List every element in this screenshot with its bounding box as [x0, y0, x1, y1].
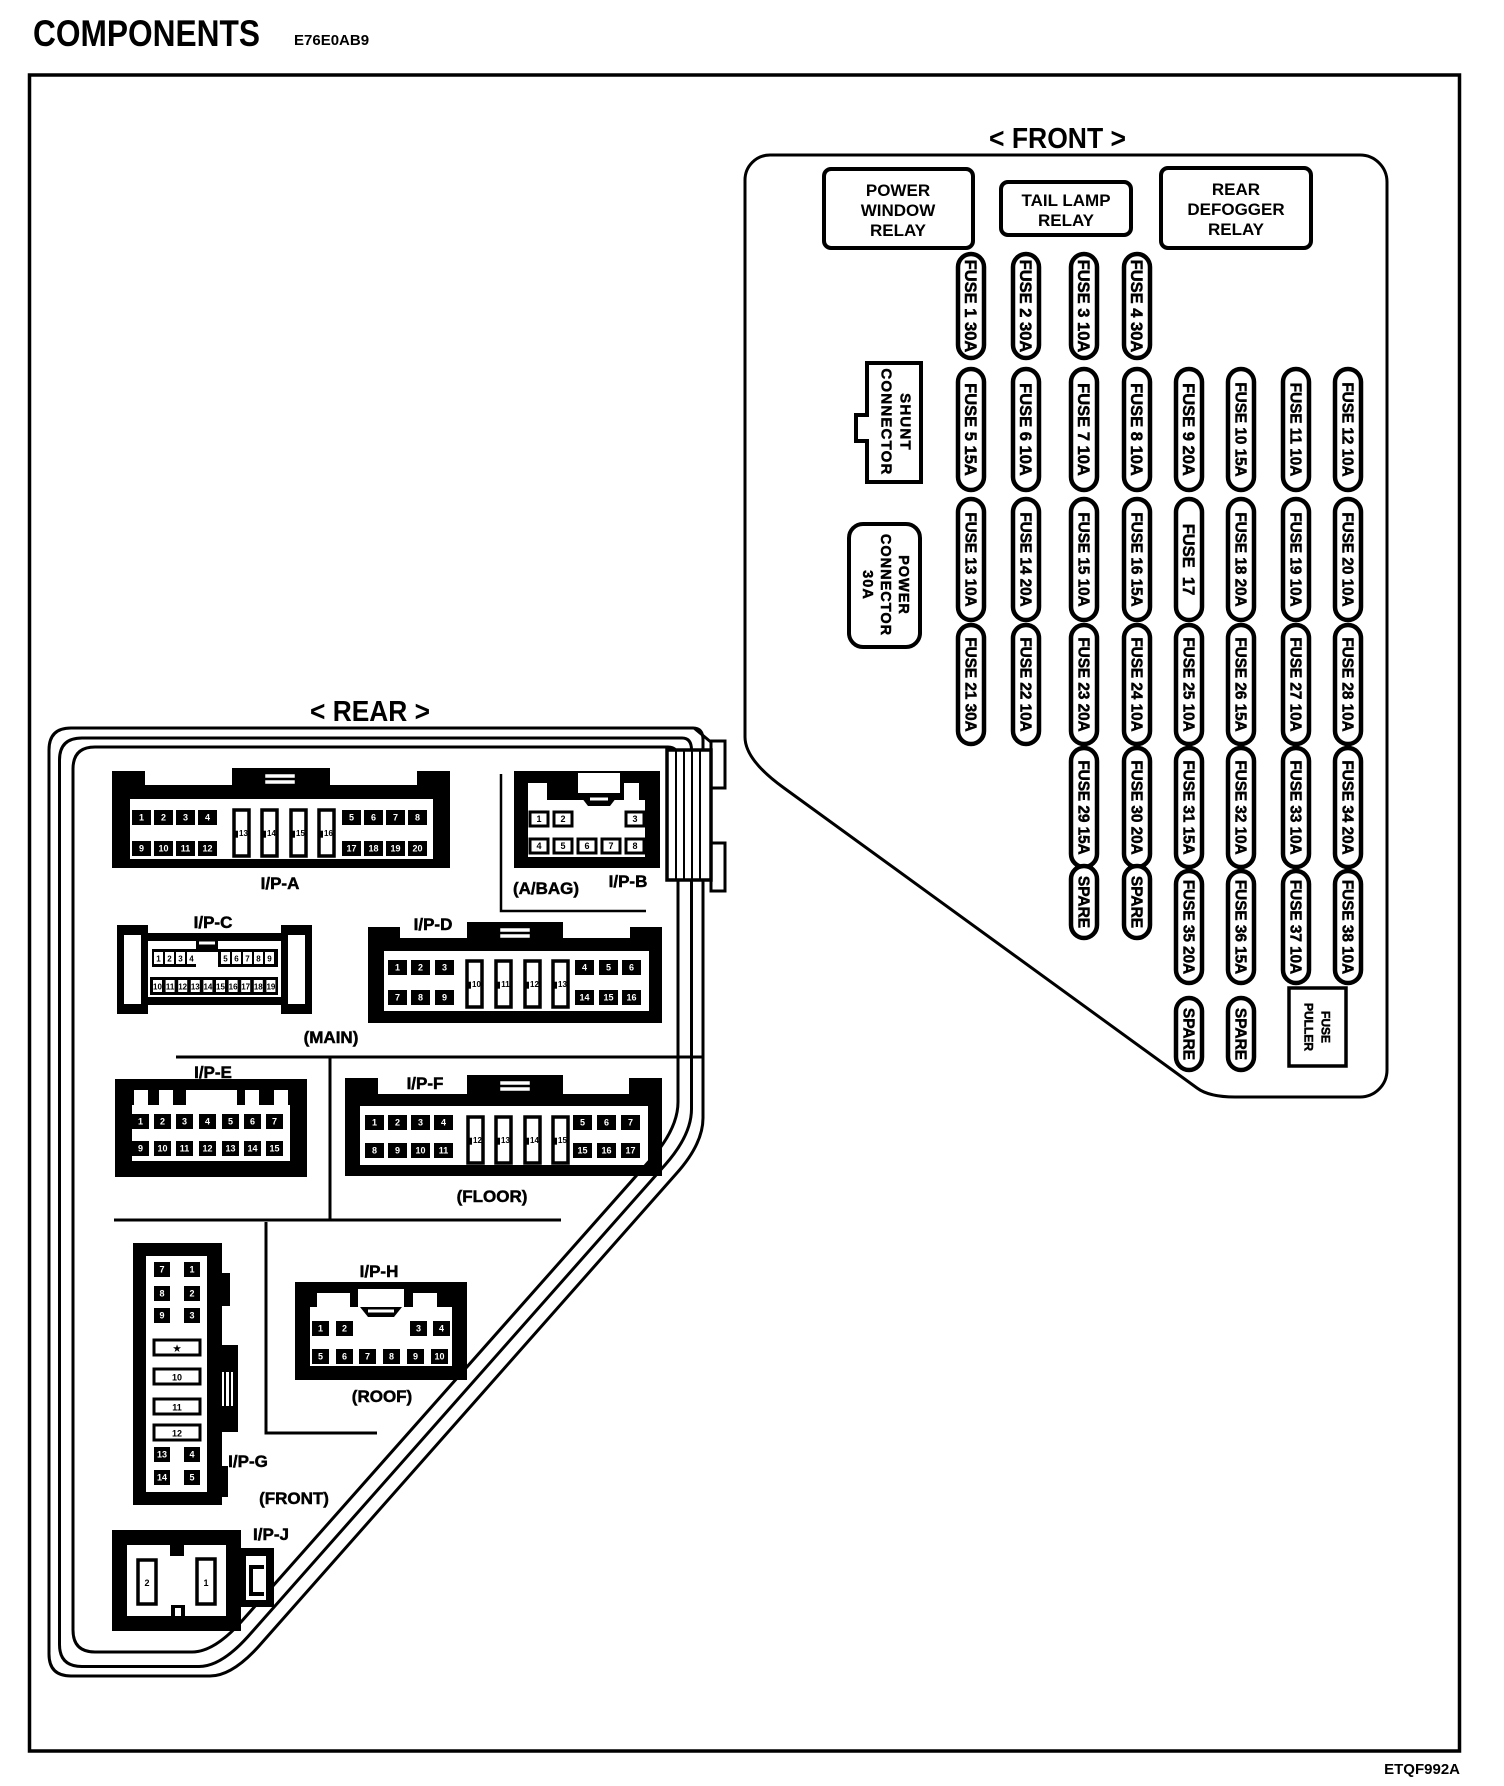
svg-text:FUSE 25 10A: FUSE 25 10A: [1180, 637, 1197, 731]
svg-text:14: 14: [579, 993, 589, 1003]
svg-text:I/P-D: I/P-D: [414, 915, 453, 934]
svg-text:1: 1: [156, 955, 161, 964]
svg-text:FUSE 28 10A: FUSE 28 10A: [1339, 637, 1356, 731]
svg-text:8: 8: [389, 1352, 394, 1362]
svg-text:FUSE 30 20A: FUSE 30 20A: [1128, 760, 1145, 854]
svg-text:1: 1: [536, 814, 541, 824]
svg-text:15: 15: [558, 1136, 567, 1145]
svg-text:17: 17: [625, 1146, 635, 1156]
svg-text:20: 20: [412, 844, 422, 854]
svg-text:SPARE: SPARE: [1074, 876, 1091, 928]
svg-text:FUSE 7 10A: FUSE 7 10A: [1074, 383, 1092, 476]
svg-text:2: 2: [161, 813, 166, 823]
svg-text:1: 1: [189, 1265, 194, 1275]
svg-text:(A/BAG): (A/BAG): [513, 879, 579, 898]
svg-text:12: 12: [473, 1136, 482, 1145]
svg-text:7: 7: [272, 1117, 277, 1127]
svg-text:8: 8: [632, 841, 637, 851]
svg-text:2: 2: [160, 1117, 165, 1127]
svg-text:16: 16: [229, 983, 238, 992]
svg-text:POWER: POWER: [866, 181, 930, 200]
svg-text:19: 19: [390, 844, 400, 854]
svg-text:12: 12: [202, 844, 212, 854]
svg-text:18: 18: [254, 983, 263, 992]
svg-text:2: 2: [418, 963, 423, 973]
svg-text:7: 7: [245, 955, 250, 964]
svg-text:6: 6: [371, 813, 376, 823]
svg-text:6: 6: [250, 1117, 255, 1127]
svg-text:9: 9: [159, 1311, 164, 1321]
svg-text:I/P-A: I/P-A: [261, 874, 300, 893]
svg-text:WINDOW: WINDOW: [861, 201, 937, 220]
svg-text:FUSE 5 15A: FUSE 5 15A: [961, 383, 979, 476]
svg-text:< FRONT >: < FRONT >: [989, 123, 1126, 155]
svg-text:10: 10: [157, 1144, 167, 1154]
svg-text:5: 5: [228, 1117, 233, 1127]
svg-text:7: 7: [395, 993, 400, 1003]
svg-text:15: 15: [577, 1146, 587, 1156]
svg-text:4: 4: [189, 1450, 194, 1460]
svg-text:2: 2: [560, 814, 565, 824]
svg-text:FUSE 15 10A: FUSE 15 10A: [1075, 512, 1092, 606]
svg-text:1: 1: [318, 1324, 323, 1334]
svg-text:10: 10: [415, 1146, 425, 1156]
svg-text:14: 14: [247, 1144, 257, 1154]
svg-text:7: 7: [628, 1118, 633, 1128]
svg-text:6: 6: [342, 1352, 347, 1362]
svg-text:7: 7: [159, 1265, 164, 1275]
svg-text:(FRONT): (FRONT): [259, 1489, 329, 1508]
svg-text:11: 11: [501, 980, 510, 989]
svg-text:I/P-G: I/P-G: [228, 1452, 268, 1471]
svg-text:FUSE 9 20A: FUSE 9 20A: [1179, 383, 1197, 476]
svg-text:8: 8: [372, 1146, 377, 1156]
svg-text:14: 14: [203, 983, 212, 992]
svg-text:9: 9: [395, 1146, 400, 1156]
svg-text:8: 8: [256, 955, 261, 964]
svg-text:14: 14: [267, 829, 276, 838]
svg-text:★: ★: [173, 1344, 182, 1354]
svg-text:TAIL LAMP: TAIL LAMP: [1021, 191, 1110, 210]
svg-text:4: 4: [205, 813, 210, 823]
svg-text:FUSE 37 10A: FUSE 37 10A: [1287, 880, 1304, 974]
svg-text:RELAY: RELAY: [1038, 211, 1095, 230]
svg-text:FUSE 27 10A: FUSE 27 10A: [1287, 637, 1304, 731]
svg-text:9: 9: [267, 955, 272, 964]
svg-text:3: 3: [189, 1311, 194, 1321]
svg-text:13: 13: [225, 1144, 235, 1154]
svg-text:10: 10: [153, 983, 162, 992]
svg-text:FUSE 17: FUSE 17: [1179, 524, 1197, 596]
svg-text:13: 13: [558, 980, 567, 989]
svg-text:FUSE 24 10A: FUSE 24 10A: [1128, 637, 1145, 731]
svg-text:FUSE 21 30A: FUSE 21 30A: [962, 637, 979, 731]
svg-text:11: 11: [181, 844, 191, 854]
svg-text:1: 1: [203, 1578, 208, 1588]
svg-text:11: 11: [166, 983, 175, 992]
svg-text:1: 1: [395, 963, 400, 973]
svg-text:I/P-F: I/P-F: [407, 1074, 444, 1093]
svg-text:PULLER: PULLER: [1302, 1003, 1316, 1051]
svg-text:18: 18: [368, 844, 378, 854]
svg-text:I/P-C: I/P-C: [194, 913, 233, 932]
svg-text:9: 9: [138, 1144, 143, 1154]
svg-text:5: 5: [223, 955, 228, 964]
svg-text:4: 4: [439, 1324, 444, 1334]
svg-text:9: 9: [442, 993, 447, 1003]
svg-text:3: 3: [178, 955, 183, 964]
svg-text:15: 15: [216, 983, 225, 992]
svg-text:E76E0AB9: E76E0AB9: [294, 32, 369, 49]
svg-text:3: 3: [418, 1118, 423, 1128]
svg-text:FUSE 8 10A: FUSE 8 10A: [1127, 383, 1145, 476]
svg-text:FUSE 1 30A: FUSE 1 30A: [961, 260, 979, 353]
svg-text:REAR: REAR: [1212, 180, 1260, 199]
svg-text:15: 15: [296, 829, 305, 838]
svg-text:9: 9: [413, 1352, 418, 1362]
svg-text:1: 1: [138, 1117, 143, 1127]
svg-text:13: 13: [501, 1136, 510, 1145]
svg-text:FUSE 16 15A: FUSE 16 15A: [1128, 512, 1145, 606]
svg-text:2: 2: [342, 1324, 347, 1334]
svg-text:12: 12: [172, 1429, 182, 1439]
svg-text:< REAR >: < REAR >: [310, 696, 430, 728]
svg-text:FUSE 33 10A: FUSE 33 10A: [1287, 760, 1304, 854]
svg-text:4: 4: [536, 841, 541, 851]
svg-text:4: 4: [205, 1117, 210, 1127]
svg-text:SPARE: SPARE: [1231, 1008, 1248, 1060]
svg-text:(ROOF): (ROOF): [352, 1387, 412, 1406]
svg-text:FUSE 38 10A: FUSE 38 10A: [1339, 880, 1356, 974]
svg-text:2: 2: [395, 1118, 400, 1128]
svg-text:12: 12: [178, 983, 187, 992]
svg-text:POWER: POWER: [895, 555, 911, 615]
svg-text:(MAIN): (MAIN): [304, 1028, 359, 1047]
svg-text:FUSE 29 15A: FUSE 29 15A: [1075, 760, 1092, 854]
svg-text:5: 5: [580, 1118, 585, 1128]
svg-text:4: 4: [441, 1118, 446, 1128]
svg-text:(FLOOR): (FLOOR): [457, 1187, 528, 1206]
svg-text:10: 10: [434, 1352, 444, 1362]
svg-text:FUSE 34 20A: FUSE 34 20A: [1339, 760, 1356, 854]
svg-text:4: 4: [189, 955, 194, 964]
svg-text:15: 15: [269, 1144, 279, 1154]
svg-text:13: 13: [157, 1450, 167, 1460]
svg-text:10: 10: [158, 844, 168, 854]
svg-text:SPARE: SPARE: [1127, 876, 1144, 928]
svg-text:RELAY: RELAY: [870, 221, 927, 240]
svg-text:FUSE 4 30A: FUSE 4 30A: [1127, 260, 1145, 353]
svg-text:I/P-J: I/P-J: [253, 1525, 289, 1544]
svg-text:3: 3: [442, 963, 447, 973]
svg-text:3: 3: [183, 813, 188, 823]
svg-text:SHUNT: SHUNT: [897, 393, 914, 451]
svg-text:FUSE 20 10A: FUSE 20 10A: [1339, 512, 1356, 606]
svg-text:12: 12: [202, 1144, 212, 1154]
svg-text:FUSE 3 10A: FUSE 3 10A: [1074, 260, 1092, 353]
svg-text:16: 16: [601, 1146, 611, 1156]
svg-text:7: 7: [608, 841, 613, 851]
svg-text:15: 15: [603, 993, 613, 1003]
svg-text:I/P-E: I/P-E: [194, 1063, 232, 1082]
svg-text:13: 13: [191, 983, 200, 992]
svg-text:8: 8: [418, 993, 423, 1003]
svg-text:FUSE 6 10A: FUSE 6 10A: [1016, 383, 1034, 476]
svg-text:19: 19: [266, 983, 275, 992]
svg-text:FUSE 19 10A: FUSE 19 10A: [1287, 512, 1304, 606]
svg-text:FUSE 31 15A: FUSE 31 15A: [1180, 760, 1197, 854]
svg-text:RELAY: RELAY: [1208, 220, 1265, 239]
svg-text:I/P-B: I/P-B: [609, 872, 648, 891]
svg-text:FUSE 10 15A: FUSE 10 15A: [1232, 382, 1249, 476]
svg-text:5: 5: [349, 813, 354, 823]
svg-text:10: 10: [172, 1373, 182, 1383]
svg-text:16: 16: [626, 993, 636, 1003]
svg-text:3: 3: [416, 1324, 421, 1334]
svg-text:11: 11: [180, 1144, 190, 1154]
svg-text:4: 4: [582, 963, 587, 973]
svg-text:FUSE 35 20A: FUSE 35 20A: [1180, 880, 1197, 974]
svg-text:3: 3: [632, 814, 637, 824]
svg-text:FUSE 26 15A: FUSE 26 15A: [1232, 637, 1249, 731]
svg-text:1: 1: [372, 1118, 377, 1128]
svg-text:FUSE 32 10A: FUSE 32 10A: [1232, 760, 1249, 854]
svg-text:I/P-H: I/P-H: [360, 1262, 399, 1281]
svg-text:5: 5: [318, 1352, 323, 1362]
svg-text:13: 13: [239, 829, 248, 838]
svg-text:14: 14: [157, 1473, 167, 1483]
svg-text:8: 8: [415, 813, 420, 823]
svg-text:5: 5: [189, 1473, 194, 1483]
svg-text:8: 8: [159, 1289, 164, 1299]
svg-text:7: 7: [393, 813, 398, 823]
svg-text:2: 2: [189, 1289, 194, 1299]
svg-text:FUSE: FUSE: [1319, 1011, 1333, 1043]
svg-text:9: 9: [139, 844, 144, 854]
svg-text:12: 12: [530, 980, 539, 989]
svg-text:FUSE 11 10A: FUSE 11 10A: [1287, 383, 1304, 477]
svg-text:1: 1: [139, 813, 144, 823]
svg-text:2: 2: [144, 1578, 149, 1588]
svg-text:FUSE 22 10A: FUSE 22 10A: [1017, 637, 1034, 731]
svg-text:6: 6: [629, 963, 634, 973]
svg-text:7: 7: [365, 1352, 370, 1362]
svg-text:FUSE 12 10A: FUSE 12 10A: [1339, 382, 1356, 476]
svg-text:CONNECTOR: CONNECTOR: [877, 534, 893, 636]
svg-text:FUSE 36 15A: FUSE 36 15A: [1232, 880, 1249, 974]
svg-text:ETQF992A: ETQF992A: [1384, 1761, 1460, 1778]
svg-text:14: 14: [530, 1136, 539, 1145]
svg-text:DEFOGGER: DEFOGGER: [1187, 200, 1284, 219]
svg-text:2: 2: [167, 955, 172, 964]
svg-text:FUSE 2 30A: FUSE 2 30A: [1016, 260, 1034, 353]
svg-text:FUSE 13 10A: FUSE 13 10A: [962, 512, 979, 606]
svg-text:17: 17: [346, 844, 356, 854]
svg-text:FUSE 14 20A: FUSE 14 20A: [1017, 512, 1034, 606]
svg-text:11: 11: [172, 1403, 182, 1413]
svg-text:SPARE: SPARE: [1179, 1008, 1196, 1060]
svg-text:6: 6: [584, 841, 589, 851]
svg-text:6: 6: [234, 955, 239, 964]
svg-text:10: 10: [472, 980, 481, 989]
svg-text:6: 6: [604, 1118, 609, 1128]
svg-text:FUSE 18 20A: FUSE 18 20A: [1232, 512, 1249, 606]
svg-text:CONNECTOR: CONNECTOR: [878, 368, 895, 475]
svg-text:5: 5: [560, 841, 565, 851]
svg-text:3: 3: [182, 1117, 187, 1127]
svg-text:30A: 30A: [859, 570, 875, 600]
svg-text:17: 17: [241, 983, 250, 992]
svg-text:5: 5: [606, 963, 611, 973]
svg-text:16: 16: [324, 829, 333, 838]
svg-text:11: 11: [439, 1146, 449, 1156]
svg-text:FUSE 23 20A: FUSE 23 20A: [1075, 637, 1092, 731]
svg-text:COMPONENTS: COMPONENTS: [33, 13, 260, 54]
